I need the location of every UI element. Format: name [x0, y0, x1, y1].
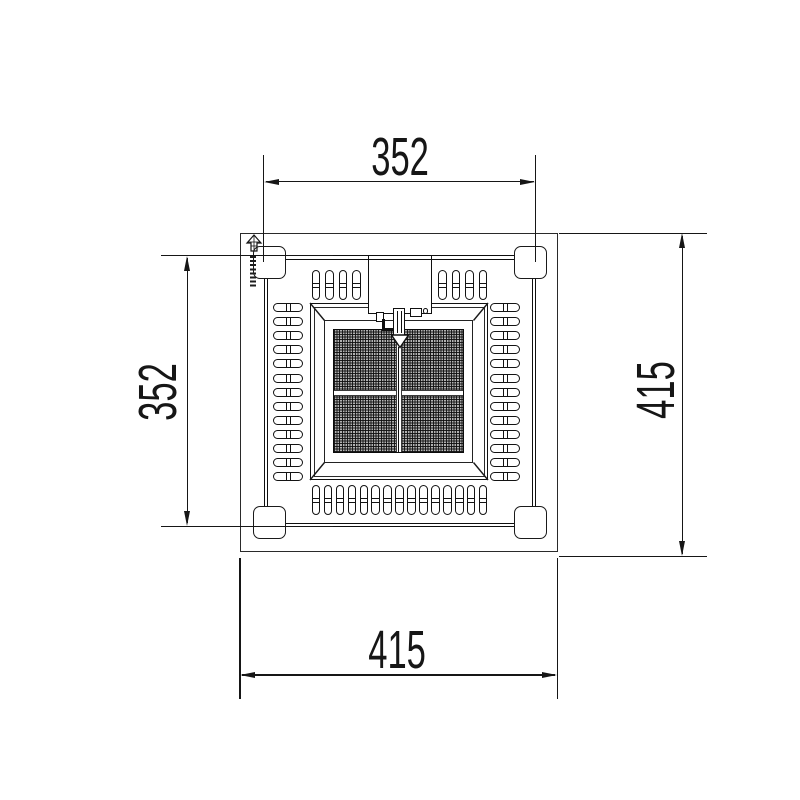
vent-slot	[273, 402, 303, 411]
vent-slot	[431, 485, 440, 515]
igniter-bracket-foot	[382, 328, 393, 331]
arrowhead-right	[542, 672, 557, 678]
vent-slot	[479, 270, 488, 300]
terminal-block	[410, 308, 422, 318]
vent-slot	[490, 458, 520, 467]
vent-slot	[490, 303, 520, 312]
arrowhead-up	[679, 233, 685, 248]
vent-slot	[312, 270, 321, 300]
vent-slot	[443, 485, 452, 515]
vent-slot	[490, 388, 520, 397]
arrowhead-up	[184, 256, 190, 271]
vent-slot	[273, 303, 303, 312]
vent-slot	[490, 345, 520, 354]
vent-slot	[273, 472, 303, 481]
vent-slot	[273, 317, 303, 326]
vent-slot	[438, 270, 447, 300]
vent-slot	[467, 485, 476, 515]
vent-slot	[371, 485, 380, 515]
extension-line	[263, 155, 264, 262]
brand-vertical-text	[250, 256, 256, 289]
arrowhead-right	[520, 179, 535, 185]
dimension-bottom-value: 415	[368, 623, 426, 677]
north-arrow-logo-icon	[244, 234, 264, 254]
vent-slot	[490, 444, 520, 453]
arrowhead-left	[264, 179, 279, 185]
vent-slot	[395, 485, 404, 515]
pilot-dot	[423, 308, 429, 314]
arrowhead-down	[679, 541, 685, 556]
vent-slot	[273, 331, 303, 340]
vent-slot	[490, 359, 520, 368]
vent-slot	[452, 270, 461, 300]
vent-slot	[352, 270, 361, 300]
vent-slot	[348, 485, 357, 515]
vent-slot	[490, 331, 520, 340]
dimension-right-value: 415	[629, 361, 683, 419]
arrowhead-left	[240, 672, 255, 678]
vent-slot	[490, 472, 520, 481]
vent-slot	[465, 270, 474, 300]
electrode-core	[397, 311, 402, 333]
vent-slot	[273, 359, 303, 368]
vent-slot	[360, 485, 369, 515]
vent-slot	[419, 485, 428, 515]
vent-slot	[273, 458, 303, 467]
vent-slot	[490, 416, 520, 425]
vent-slot	[325, 270, 334, 300]
extension-line	[535, 155, 536, 262]
vent-slot	[273, 345, 303, 354]
vent-slot	[312, 485, 321, 515]
vent-slot	[273, 374, 303, 383]
vent-slot	[407, 485, 416, 515]
vent-slot	[339, 270, 348, 300]
vent-slot	[383, 485, 392, 515]
vent-slot	[479, 485, 488, 515]
drawing-sheet: 352 352 415 415	[0, 0, 800, 800]
dimension-top-value: 352	[371, 130, 429, 184]
vent-slot	[336, 485, 345, 515]
vent-slot	[490, 430, 520, 439]
vent-slot	[273, 430, 303, 439]
vent-slot	[273, 444, 303, 453]
vent-slot	[490, 402, 520, 411]
extension-line	[557, 558, 558, 699]
vent-slot	[324, 485, 333, 515]
arrowhead-down	[184, 511, 190, 526]
vent-slot	[273, 416, 303, 425]
vent-slot	[490, 317, 520, 326]
dimension-left-value: 352	[131, 363, 185, 421]
vent-slot	[490, 374, 520, 383]
electrode-tip-icon	[390, 334, 410, 349]
vent-slot	[455, 485, 464, 515]
vent-slot	[273, 388, 303, 397]
extension-line	[239, 558, 240, 699]
